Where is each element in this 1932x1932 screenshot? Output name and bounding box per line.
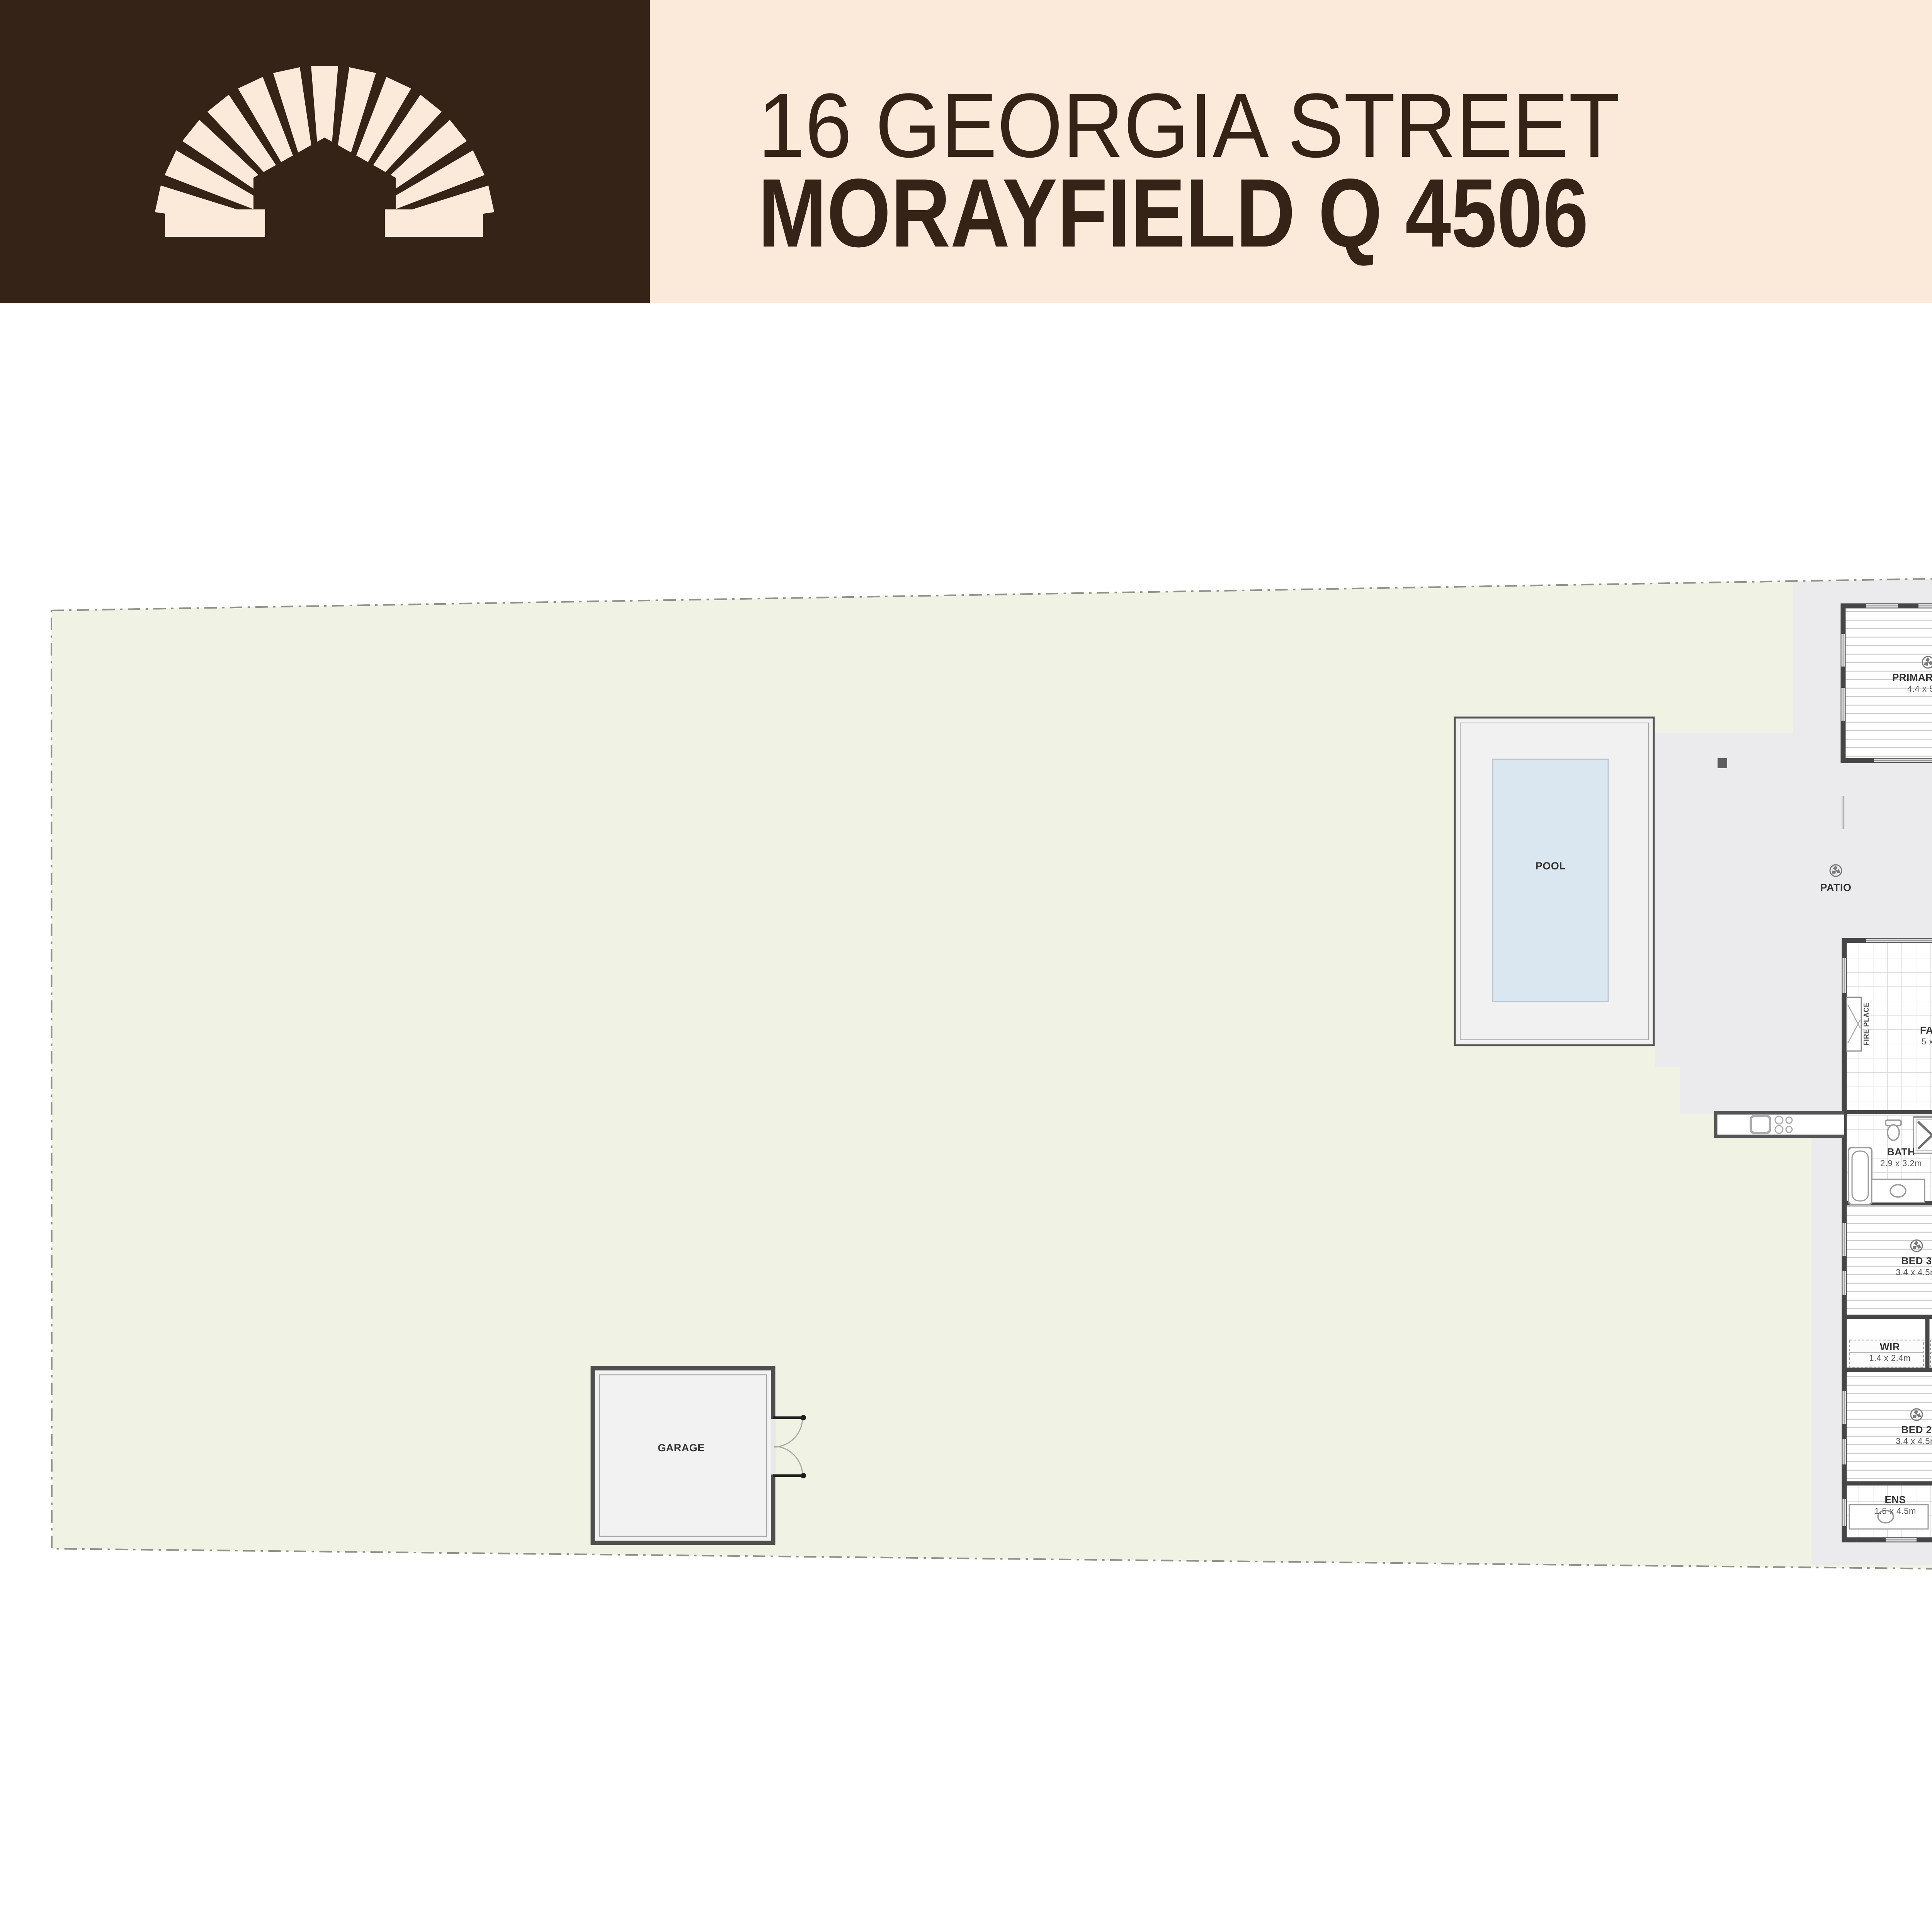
svg-text:1.4 x 2.4m: 1.4 x 2.4m [1869, 1353, 1911, 1363]
svg-text:BATH: BATH [1887, 1146, 1915, 1158]
svg-text:3.4 x 4.5m: 3.4 x 4.5m [1896, 1436, 1932, 1446]
svg-text:3.4 x 4.5m: 3.4 x 4.5m [1896, 1267, 1932, 1277]
svg-text:PATIO: PATIO [1820, 882, 1852, 893]
svg-text:GARAGE: GARAGE [658, 1442, 705, 1454]
svg-text:PRIMARY BED: PRIMARY BED [1892, 672, 1932, 683]
svg-text:1.5 x 4.5m: 1.5 x 4.5m [1874, 1506, 1916, 1516]
svg-text:4.4 x 5.6m: 4.4 x 5.6m [1907, 684, 1932, 694]
svg-text:BED 3: BED 3 [1901, 1255, 1932, 1267]
svg-text:5 x 3.9m: 5 x 3.9m [1922, 1037, 1932, 1046]
svg-text:WIR: WIR [1880, 1341, 1900, 1352]
svg-text:FAMILY: FAMILY [1920, 1024, 1932, 1036]
svg-text:POOL: POOL [1536, 860, 1566, 872]
svg-text:MORAYFIELD Q 4506: MORAYFIELD Q 4506 [758, 159, 1588, 267]
svg-text:2.9 x 3.2m: 2.9 x 3.2m [1880, 1158, 1922, 1168]
svg-text:BED 2: BED 2 [1901, 1424, 1932, 1435]
svg-text:FIRE PLACE: FIRE PLACE [1862, 1002, 1870, 1046]
svg-text:ENS: ENS [1885, 1494, 1906, 1505]
